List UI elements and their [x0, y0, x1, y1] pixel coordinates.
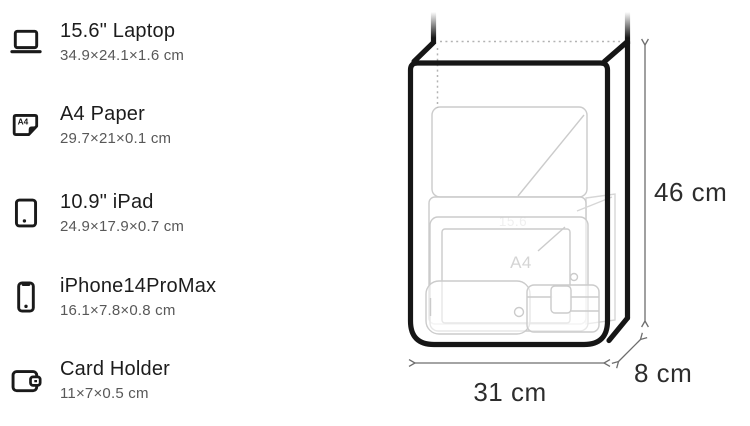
- inner-a4-label: A4: [510, 253, 532, 272]
- depth-label: 8 cm: [634, 358, 692, 388]
- inner-sheet-outline: [432, 107, 587, 197]
- inner-card-holder-outline: [527, 285, 599, 332]
- inner-item-outlines: 15.6 A4: [426, 107, 615, 334]
- bag-diagram: 15.6 A4: [0, 0, 750, 426]
- inner-iphone-outline: [426, 281, 530, 334]
- bag-bottom-right-edge: [609, 318, 628, 341]
- width-label: 31 cm: [473, 377, 546, 407]
- hidden-edge-dotted-lines: [438, 42, 621, 109]
- bag-top-left-edge: [414, 43, 434, 62]
- bag-size-guide-infographic: 15.6" Laptop 34.9×24.1×1.6 cm A4 A4 Pape…: [0, 0, 750, 426]
- height-label: 46 cm: [654, 177, 727, 207]
- bag-straps: [434, 10, 628, 44]
- bag-top-right-edge: [605, 42, 628, 62]
